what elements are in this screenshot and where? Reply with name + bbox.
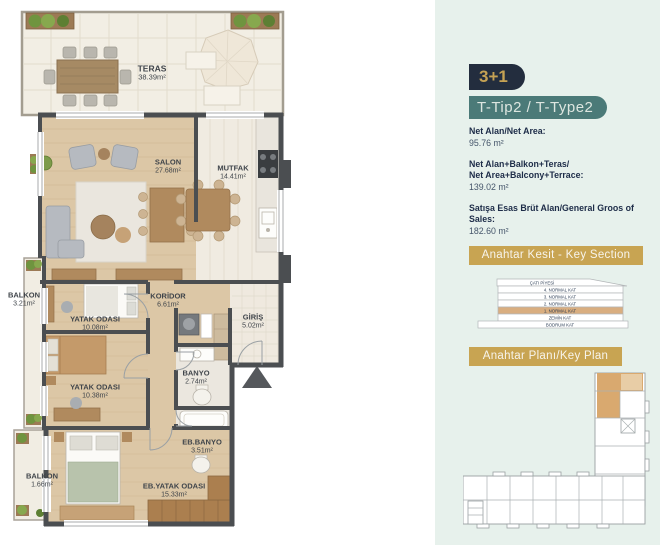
stat-value: 95.76 m² <box>469 138 654 149</box>
info-panel: 3+1 T-Tip2 / T-Type2 Net Alan/Net Area: … <box>435 0 660 545</box>
floorplan-sheet: TERAS38.39m² SALON27.68m² MUTFAK14.41m² … <box>0 0 660 545</box>
stat-net-plus-balcony: Net Alan+Balkon+Teras/ Net Area+Balcony+… <box>469 159 654 193</box>
key-plan-diagram <box>463 371 660 543</box>
room-label-teras: TERAS38.39m² <box>138 64 167 83</box>
unit-type-badge: 3+1 <box>469 64 525 90</box>
stat-label: Net Alan+Balkon+Teras/ <box>469 159 654 170</box>
svg-text:ZEMİN KAT: ZEMİN KAT <box>549 315 572 320</box>
stat-gross-area: Satışa Esas Brüt Alan/General Groos of S… <box>469 203 654 237</box>
svg-text:3. NORMAL KAT: 3. NORMAL KAT <box>544 294 577 299</box>
svg-text:1. NORMAL KAT: 1. NORMAL KAT <box>544 308 577 313</box>
floor-plan-drawing <box>0 0 435 545</box>
room-label-eb-yatak-odasi: EB.YATAK ODASI15.33m² <box>143 482 205 499</box>
key-section-banner: Anahtar Kesit - Key Section <box>469 246 643 265</box>
room-label-balkon-bottom: BALKON1.66m² <box>26 472 58 489</box>
room-label-balkon-left: BALKON3.21m² <box>8 291 40 308</box>
entrance-arrow-icon <box>242 366 272 388</box>
stat-net-area: Net Alan/Net Area: 95.76 m² <box>469 126 654 149</box>
room-label-eb-banyo: EB.BANYO3.51m² <box>182 438 222 455</box>
svg-text:ÇATI PİYESİ: ÇATI PİYESİ <box>530 280 555 285</box>
stat-label: Satışa Esas Brüt Alan/General Groos of S… <box>469 203 654 225</box>
unit-name-badge: T-Tip2 / T-Type2 <box>469 96 607 119</box>
room-label-yatak-odasi-1: YATAK ODASI10.08m² <box>70 315 120 332</box>
floor-plan: TERAS38.39m² SALON27.68m² MUTFAK14.41m² … <box>0 0 435 545</box>
key-plan-banner: Anahtar Planı/Key Plan <box>469 347 622 366</box>
stat-value: 139.02 m² <box>469 182 654 193</box>
room-label-salon: SALON27.68m² <box>155 158 181 175</box>
room-label-banyo: BANYO2.74m² <box>182 369 209 386</box>
stat-label: Net Area+Balcony+Terrace: <box>469 170 654 181</box>
key-section-diagram: ÇATI PİYESİ 4. NORMAL KAT 3. NORMAL KAT … <box>470 276 630 334</box>
svg-text:4. NORMAL KAT: 4. NORMAL KAT <box>544 287 577 292</box>
stat-value: 182.60 m² <box>469 226 654 237</box>
stat-label: Net Alan/Net Area: <box>469 126 654 137</box>
room-label-koridor: KORİDOR6.61m² <box>150 292 185 309</box>
room-label-giris: GİRİŞ5.02m² <box>242 313 264 330</box>
svg-text:BODRUM KAT: BODRUM KAT <box>546 322 575 327</box>
room-label-yatak-odasi-2: YATAK ODASI10.38m² <box>70 383 120 400</box>
column <box>279 160 291 188</box>
column <box>279 255 291 283</box>
room-label-mutfak: MUTFAK14.41m² <box>217 164 248 181</box>
svg-text:2. NORMAL KAT: 2. NORMAL KAT <box>544 301 577 306</box>
